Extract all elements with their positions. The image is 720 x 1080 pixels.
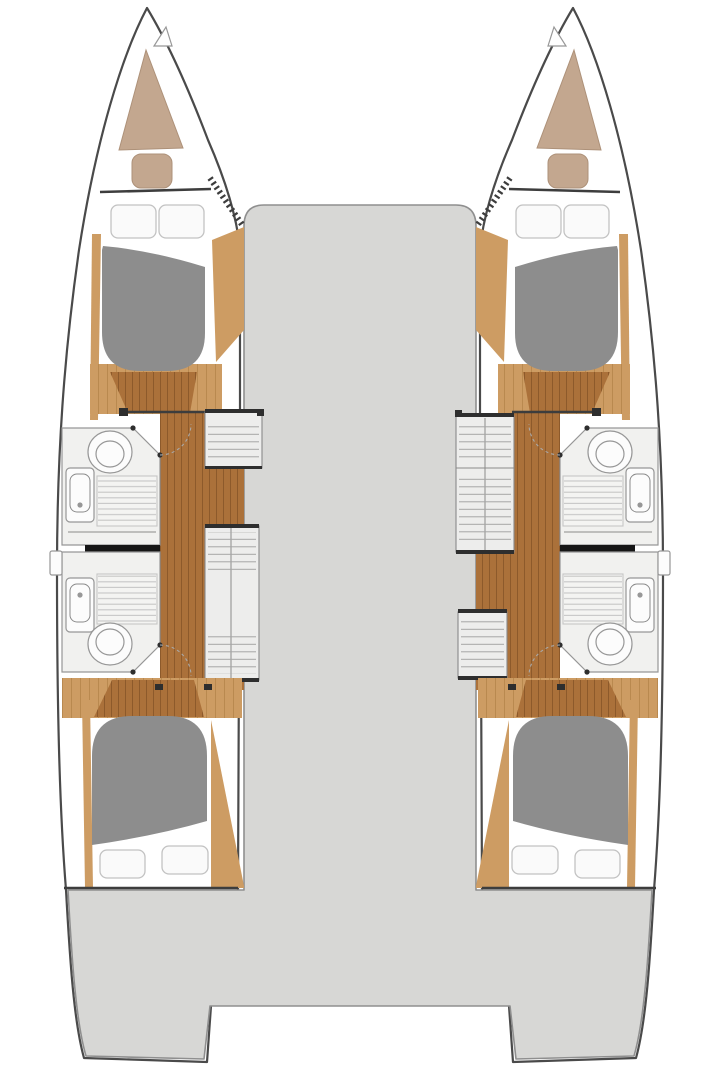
starboard-aft-cabin-floor-center-planks [516,680,626,717]
starboard-fwd-toilet-bowl [596,441,624,467]
starboard-hull-porthole [658,551,670,575]
floor-plan-page [0,0,720,1080]
port-aft-faucet [77,592,82,597]
port-fwd-berth [102,246,205,371]
starboard-aft-door-post-inner [557,684,565,690]
port-steps-top-edge [205,409,262,413]
starboard-fwd-faucet [637,502,642,507]
starboard-steps-top-edge [456,413,514,417]
port-fwd-faucet [77,502,82,507]
starboard-aft-berth-pillow-outer [575,850,620,878]
port-fwd-berth-pillow-right [159,205,204,238]
port-hull-porthole [50,551,62,575]
starboard-steps-treads-upper [459,424,511,462]
catamaran-floor-plan [0,0,720,1080]
port-fwd-door-hinge-a [130,425,135,430]
starboard-fwd-door-post [592,408,601,416]
port-aft-door-post-right [204,684,212,690]
port-fwd-toilet-bowl [96,441,124,467]
port-wardrobe-top-edge [205,524,259,528]
starboard-head-partition [560,545,635,552]
starboard-aft-door-post-outer [508,684,516,690]
starboard-wardrobe-top-edge [458,609,507,613]
port-bow-cushion [132,154,172,188]
starboard-fwd-shower-slats [564,477,622,525]
port-aft-berth-pillow-left [100,850,145,878]
starboard-steps-corner-post [455,410,462,417]
starboard-wardrobe-shelves [461,620,504,670]
port-aft-berth-pillow-right [162,846,208,874]
starboard-aft-berth [513,716,628,845]
starboard-fwd-berth [515,246,618,371]
starboard-fwd-berth-pillow-inner [516,205,561,238]
starboard-aft-berth-pillow-inner [512,846,558,874]
port-steps-bottom-edge [205,466,262,469]
port-companionway-steps-treads [208,420,259,462]
port-wardrobe-shelves-lower [208,634,256,674]
port-aft-door-post-left [155,684,163,690]
starboard-aft-shower-slats [564,575,622,623]
starboard-aft-door-hinge-a [584,669,589,674]
starboard-fwd-berth-pillow-outer [564,205,609,238]
starboard-aft-toilet-bowl [596,629,624,655]
port-fwd-door-post [119,408,128,416]
port-aft-door-hinge-a [130,669,135,674]
port-head-partition [85,545,160,552]
starboard-bow-cushion [548,154,588,188]
port-aft-shower-slats [98,575,156,623]
starboard-aft-faucet [637,592,642,597]
port-aft-cabin-floor-center-planks [94,680,204,717]
port-fwd-berth-pillow-left [111,205,156,238]
starboard-steps-bottom-edge [456,550,514,554]
port-steps-corner-post [257,409,264,416]
starboard-fwd-door-hinge-a [584,425,589,430]
port-aft-berth [92,716,207,845]
port-fwd-shower-slats [98,477,156,525]
starboard-steps-treads-lower [459,478,511,544]
port-aft-toilet-bowl [96,629,124,655]
port-wardrobe-shelves-upper [208,532,256,576]
